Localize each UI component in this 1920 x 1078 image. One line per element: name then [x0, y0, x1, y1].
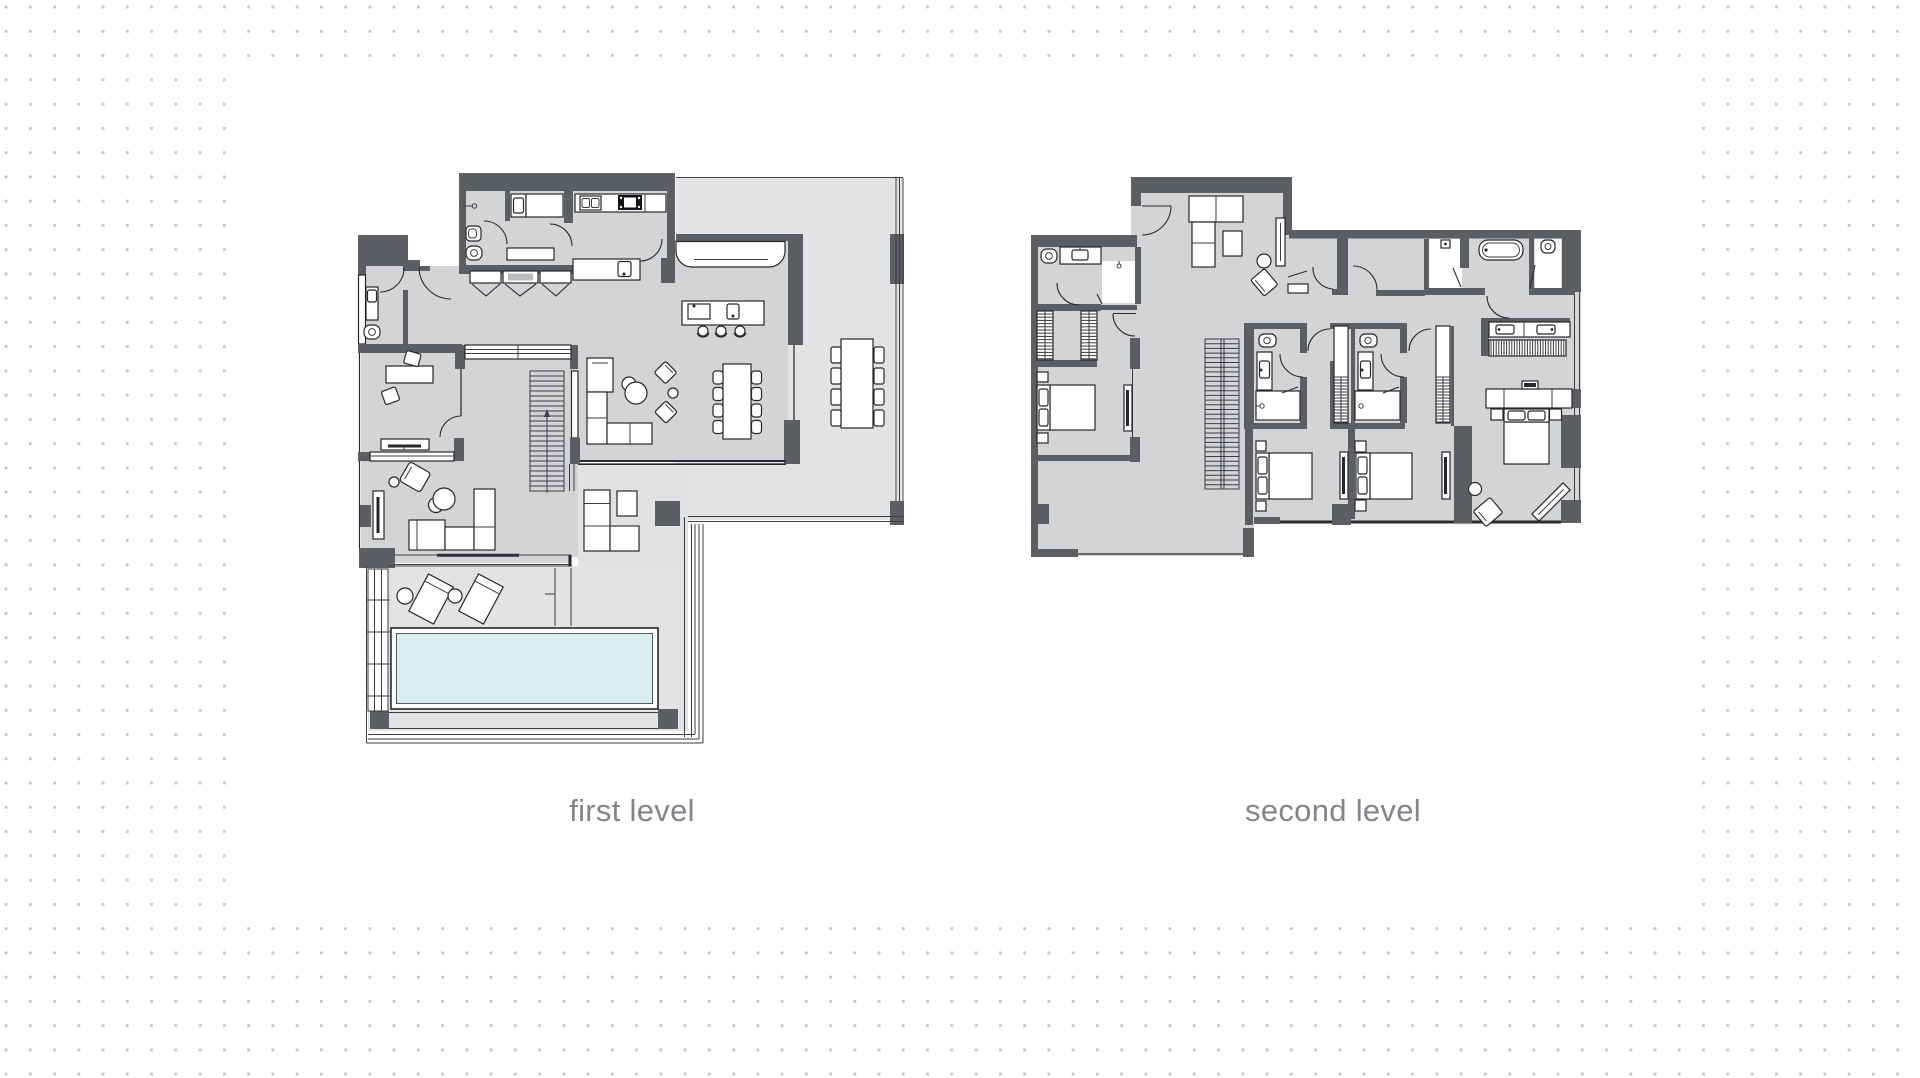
svg-text:first level: first level — [569, 793, 695, 828]
svg-text:second level: second level — [1245, 793, 1421, 828]
